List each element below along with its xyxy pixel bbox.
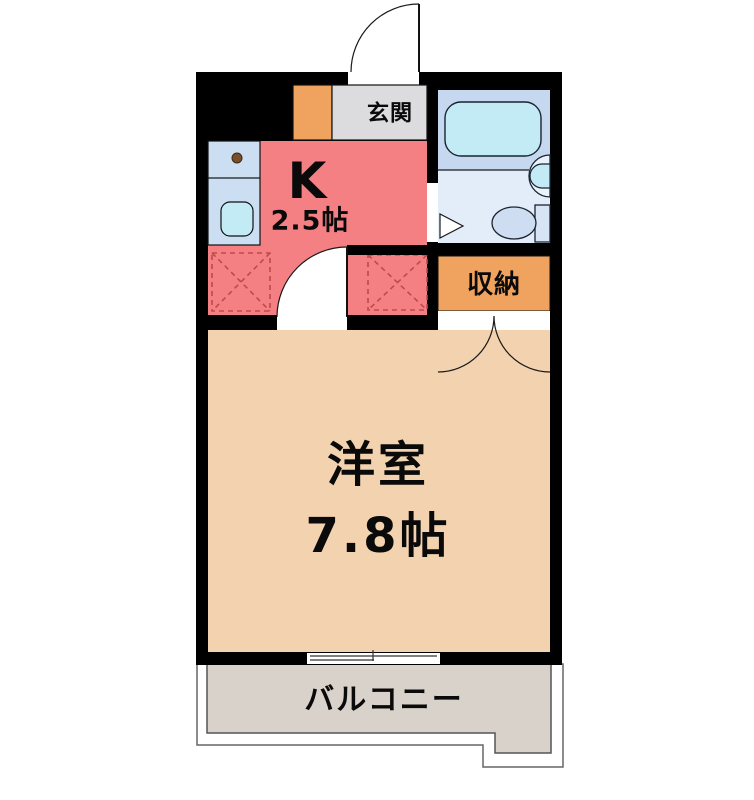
washbasin-bowl	[530, 164, 550, 188]
entrance-threshold	[348, 72, 419, 85]
western-room-area: 洋室 7.8帖	[208, 316, 550, 652]
kitchen-sink	[221, 202, 253, 236]
room-door-threshold	[277, 315, 347, 330]
western-room-size-label: 7.8帖	[305, 508, 450, 564]
western-room-label: 洋室	[327, 437, 429, 493]
bathroom-door-opening	[427, 183, 438, 242]
toilet-tank	[535, 205, 550, 242]
toilet	[492, 207, 536, 239]
bathtub	[445, 102, 541, 156]
shoe-cabinet	[293, 85, 332, 140]
kitchen-size-label: 2.5帖	[271, 206, 350, 237]
entrance-label: 玄関	[367, 101, 413, 127]
floor-plan-svg: バルコニー 玄関 K 2.5帖	[0, 0, 754, 800]
kitchen-wall-stub	[347, 245, 438, 255]
kitchen-label: K	[288, 152, 329, 210]
entrance-area: 玄関	[293, 85, 427, 140]
storage-label: 収納	[467, 269, 521, 300]
bathroom-area	[427, 90, 550, 243]
burner-dot	[232, 153, 242, 163]
floor-plan-page: バルコニー 玄関 K 2.5帖	[0, 0, 754, 800]
balcony-label: バルコニー	[304, 683, 463, 718]
